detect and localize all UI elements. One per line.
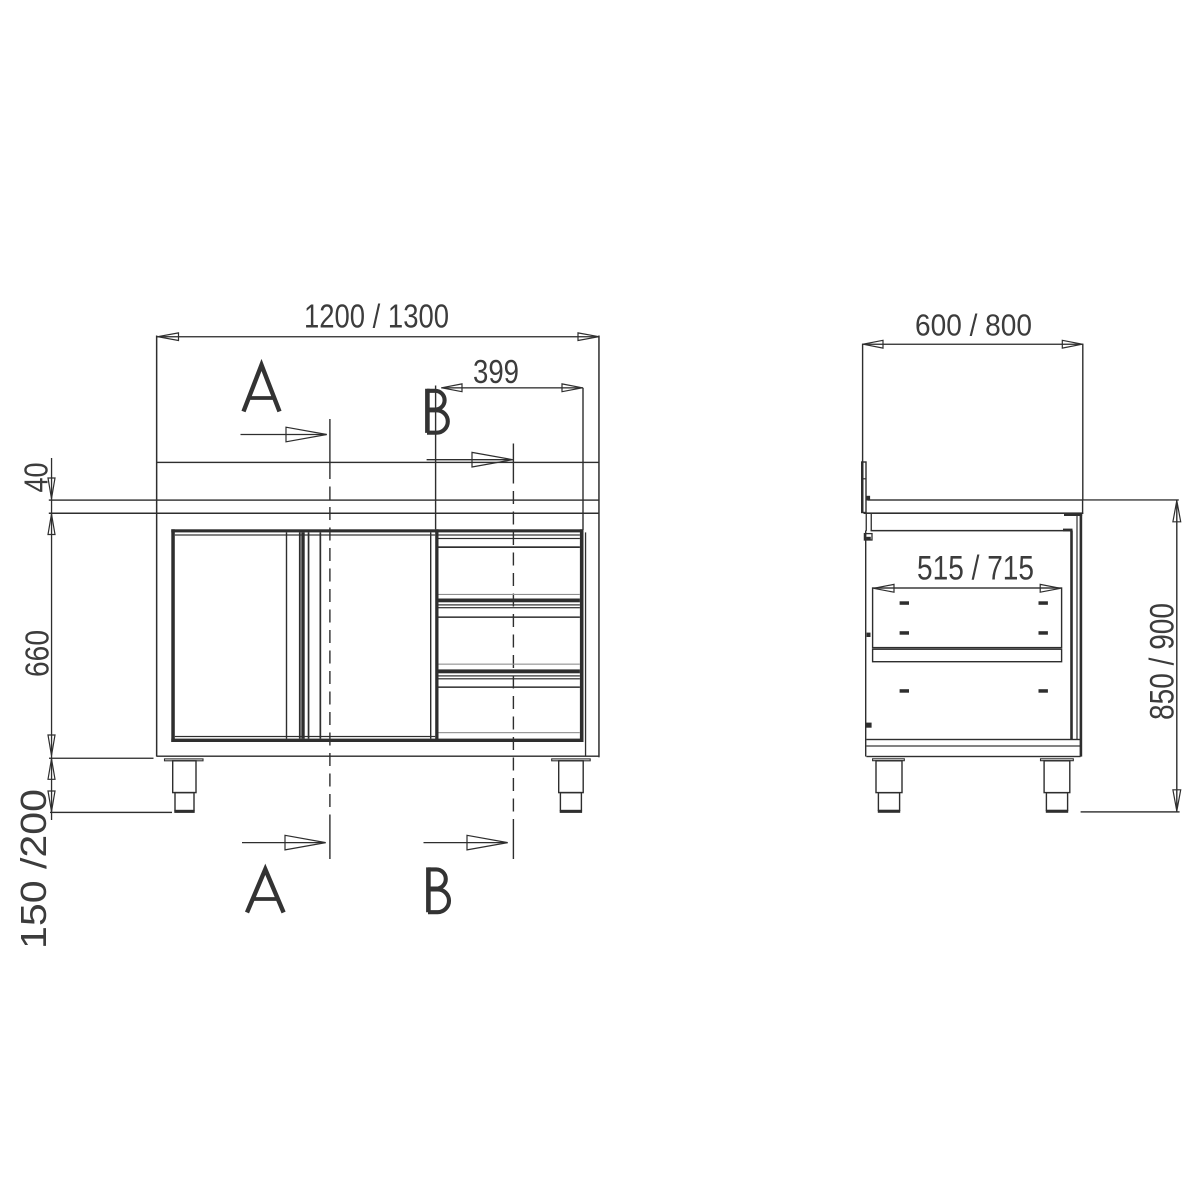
svg-text:150 /200: 150 /200 <box>13 789 54 949</box>
svg-text:1200 / 1300: 1200 / 1300 <box>304 298 449 335</box>
svg-text:515 / 715: 515 / 715 <box>917 550 1034 588</box>
svg-text:850 / 900: 850 / 900 <box>1144 603 1182 720</box>
svg-text:660: 660 <box>19 630 56 677</box>
svg-text:399: 399 <box>473 353 519 390</box>
svg-text:600 / 800: 600 / 800 <box>915 308 1032 343</box>
svg-text:40: 40 <box>18 463 55 493</box>
